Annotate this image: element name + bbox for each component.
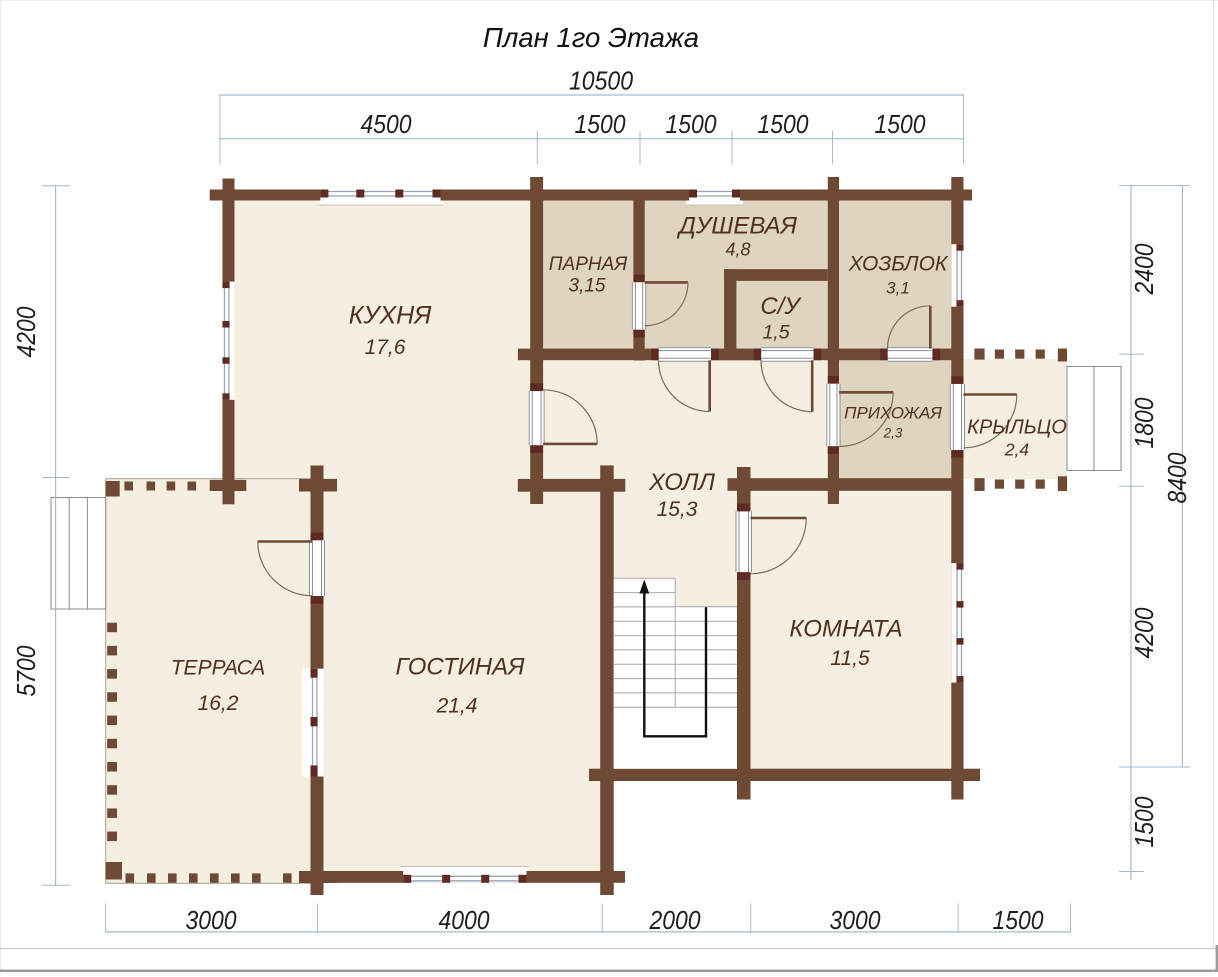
svg-text:1500: 1500 xyxy=(993,905,1044,935)
svg-text:4500: 4500 xyxy=(361,109,412,139)
svg-text:2,4: 2,4 xyxy=(1004,440,1030,460)
svg-text:17,6: 17,6 xyxy=(365,336,406,359)
svg-text:4000: 4000 xyxy=(439,905,490,935)
svg-text:ПРИХОЖАЯ: ПРИХОЖАЯ xyxy=(844,404,942,423)
svg-text:10500: 10500 xyxy=(569,66,633,96)
svg-text:1500: 1500 xyxy=(875,109,926,139)
svg-text:С/У: С/У xyxy=(760,293,802,320)
svg-text:2400: 2400 xyxy=(1129,243,1159,295)
svg-text:3,1: 3,1 xyxy=(886,279,910,298)
svg-text:5700: 5700 xyxy=(11,645,41,696)
svg-text:1500: 1500 xyxy=(758,109,809,139)
svg-text:4200: 4200 xyxy=(1129,607,1159,658)
svg-text:21,4: 21,4 xyxy=(436,695,478,718)
svg-text:4,8: 4,8 xyxy=(725,240,750,260)
svg-text:4200: 4200 xyxy=(11,306,41,357)
svg-text:1500: 1500 xyxy=(1129,796,1159,847)
svg-text:ТЕРРАСА: ТЕРРАСА xyxy=(171,657,266,680)
svg-text:1500: 1500 xyxy=(575,109,626,139)
svg-text:ХОЛЛ: ХОЛЛ xyxy=(648,469,716,496)
svg-text:1500: 1500 xyxy=(666,109,717,139)
svg-text:КОМНАТА: КОМНАТА xyxy=(789,616,902,643)
svg-text:1800: 1800 xyxy=(1129,397,1159,448)
svg-text:3000: 3000 xyxy=(186,905,237,935)
svg-text:ХОЗБЛОК: ХОЗБЛОК xyxy=(848,253,949,276)
svg-text:2,3: 2,3 xyxy=(883,426,903,441)
svg-text:1,5: 1,5 xyxy=(762,322,789,344)
svg-text:2000: 2000 xyxy=(649,905,701,935)
svg-text:3,15: 3,15 xyxy=(569,276,606,297)
svg-text:ПАРНАЯ: ПАРНАЯ xyxy=(549,254,628,275)
svg-text:8400: 8400 xyxy=(1162,452,1192,503)
svg-text:ДУШЕВАЯ: ДУШЕВАЯ xyxy=(676,213,798,240)
svg-text:ГОСТИНАЯ: ГОСТИНАЯ xyxy=(396,654,526,681)
svg-text:16,2: 16,2 xyxy=(198,692,239,715)
svg-text:План 1го Этажа: План 1го Этажа xyxy=(483,22,699,53)
svg-text:КУХНЯ: КУХНЯ xyxy=(349,302,432,330)
svg-text:15,3: 15,3 xyxy=(657,498,698,521)
svg-text:КРЫЛЬЦО: КРЫЛЬЦО xyxy=(967,417,1067,439)
svg-text:11,5: 11,5 xyxy=(830,647,870,670)
svg-text:3000: 3000 xyxy=(830,905,881,935)
